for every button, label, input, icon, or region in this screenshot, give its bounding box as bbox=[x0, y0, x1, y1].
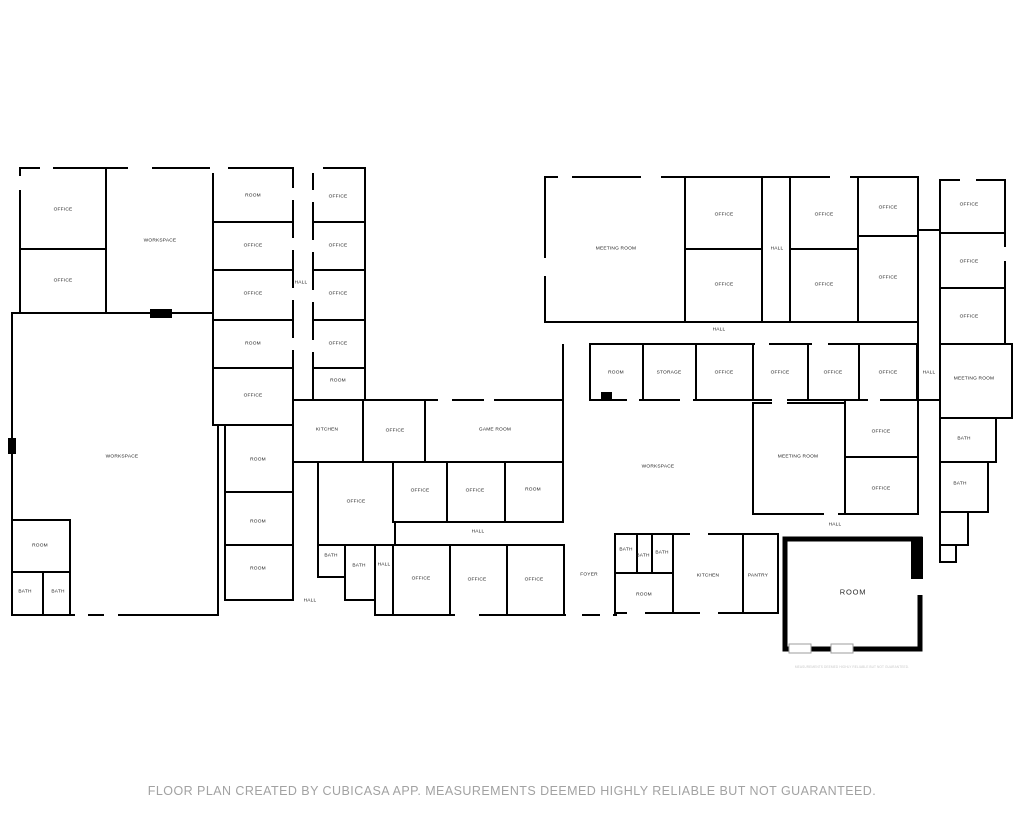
room-label: OFFICE bbox=[468, 579, 487, 584]
room-label: OFFICE bbox=[411, 490, 430, 495]
room-label: BATH bbox=[619, 549, 632, 554]
room-label: HALL bbox=[295, 282, 308, 287]
room-label: GAME ROOM bbox=[479, 429, 511, 434]
room-label: BATH bbox=[953, 483, 966, 488]
room-label: OFFICE bbox=[715, 372, 734, 377]
room-label: BATH bbox=[352, 565, 365, 570]
room-label: STORAGE bbox=[657, 372, 682, 377]
room-label: OFFICE bbox=[54, 280, 73, 285]
room-label: HALL bbox=[472, 531, 485, 536]
room-label: ROOM bbox=[330, 380, 346, 385]
room-label: OFFICE bbox=[879, 372, 898, 377]
room-label: MEETING ROOM bbox=[778, 456, 819, 461]
room-label: MEETING ROOM bbox=[596, 248, 637, 253]
room-label: OFFICE bbox=[960, 316, 979, 321]
room-label: BATH bbox=[957, 438, 970, 443]
room-label: KITCHEN bbox=[697, 575, 719, 580]
room-label: BATH bbox=[324, 555, 337, 560]
room-label: ROOM bbox=[245, 343, 261, 348]
room-label: OFFICE bbox=[960, 204, 979, 209]
room-label: OFFICE bbox=[412, 578, 431, 583]
fine-print-text: MEASUREMENTS DEEMED HIGHLY RELIABLE BUT … bbox=[795, 665, 909, 669]
room-label: OFFICE bbox=[879, 277, 898, 282]
room-label: OFFICE bbox=[347, 501, 366, 506]
room-label: BATH bbox=[636, 555, 649, 560]
room-label: OFFICE bbox=[244, 245, 263, 250]
room-label: WORKSPACE bbox=[106, 456, 139, 461]
room-label: HALL bbox=[378, 564, 391, 569]
room-label: ROOM bbox=[245, 195, 261, 200]
room-label: BATH bbox=[655, 552, 668, 557]
room-label: MEETING ROOM bbox=[954, 378, 995, 383]
room-label: OFFICE bbox=[329, 196, 348, 201]
room-label: OFFICE bbox=[466, 490, 485, 495]
room-label: ROOM bbox=[250, 459, 266, 464]
room-labels-layer: OFFICEOFFICEWORKSPACEROOMOFFICEOFFICEROO… bbox=[0, 0, 1024, 819]
room-label: ROOM bbox=[250, 568, 266, 573]
room-label: OFFICE bbox=[244, 293, 263, 298]
room-label: ROOM bbox=[608, 372, 624, 377]
disclaimer-text: FLOOR PLAN CREATED BY CUBICASA APP. MEAS… bbox=[148, 784, 876, 798]
room-label: OFFICE bbox=[771, 372, 790, 377]
floor-plan-canvas: OFFICEOFFICEWORKSPACEROOMOFFICEOFFICEROO… bbox=[0, 0, 1024, 819]
room-label: OFFICE bbox=[815, 214, 834, 219]
room-label: WORKSPACE bbox=[642, 466, 675, 471]
room-label: FOYER bbox=[580, 574, 598, 579]
room-label: OFFICE bbox=[872, 431, 891, 436]
room-label: OFFICE bbox=[386, 430, 405, 435]
room-label: ROOM bbox=[525, 489, 541, 494]
room-label: OFFICE bbox=[329, 245, 348, 250]
room-label: BATH bbox=[51, 591, 64, 596]
room-label: KITCHEN bbox=[316, 429, 338, 434]
room-label: WORKSPACE bbox=[144, 240, 177, 245]
room-label: OFFICE bbox=[54, 209, 73, 214]
room-label: HALL bbox=[829, 524, 842, 529]
room-label: OFFICE bbox=[715, 214, 734, 219]
room-label: OFFICE bbox=[815, 284, 834, 289]
room-label: OFFICE bbox=[879, 207, 898, 212]
room-label: OFFICE bbox=[715, 284, 734, 289]
room-label: HALL bbox=[304, 600, 317, 605]
room-label: OFFICE bbox=[329, 293, 348, 298]
room-label: ROOM bbox=[636, 594, 652, 599]
room-label: OFFICE bbox=[872, 488, 891, 493]
room-label: ROOM bbox=[840, 588, 867, 596]
room-label: OFFICE bbox=[960, 261, 979, 266]
room-label: OFFICE bbox=[824, 372, 843, 377]
room-label: OFFICE bbox=[525, 579, 544, 584]
room-label: PANTRY bbox=[748, 575, 768, 580]
room-label: HALL bbox=[771, 248, 784, 253]
room-label: OFFICE bbox=[244, 395, 263, 400]
room-label: HALL bbox=[923, 372, 936, 377]
room-label: BATH bbox=[18, 591, 31, 596]
room-label: OFFICE bbox=[329, 343, 348, 348]
room-label: ROOM bbox=[32, 545, 48, 550]
room-label: HALL bbox=[713, 329, 726, 334]
room-label: ROOM bbox=[250, 521, 266, 526]
